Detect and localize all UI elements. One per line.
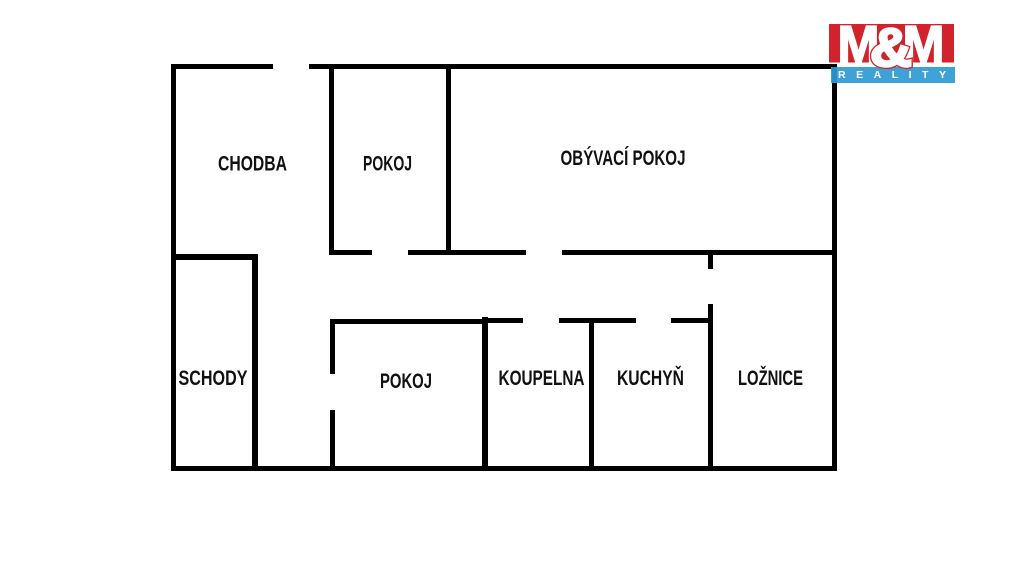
svg-text:SCHODY: SCHODY xyxy=(179,366,248,390)
svg-text:POKOJ: POKOJ xyxy=(363,152,412,176)
svg-text:CHODBA: CHODBA xyxy=(218,152,287,176)
svg-text:KUCHYŇ: KUCHYŇ xyxy=(617,365,684,390)
svg-text:LOŽNICE: LOŽNICE xyxy=(738,365,803,390)
svg-text:OBÝVACÍ POKOJ: OBÝVACÍ POKOJ xyxy=(561,145,686,170)
svg-text:KOUPELNA: KOUPELNA xyxy=(499,366,585,390)
svg-text:POKOJ: POKOJ xyxy=(380,369,432,393)
